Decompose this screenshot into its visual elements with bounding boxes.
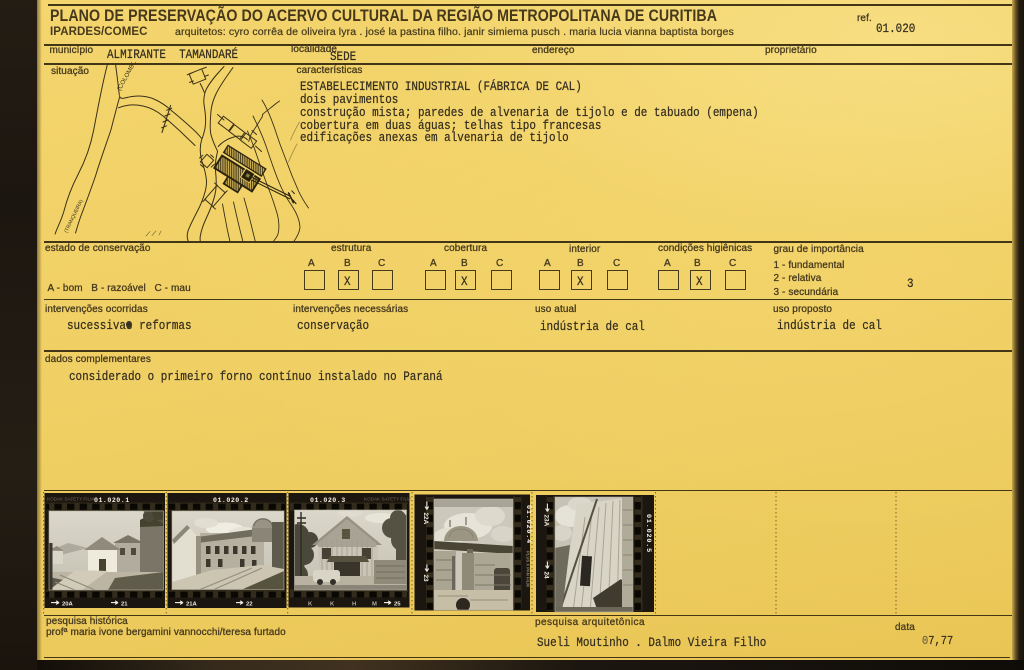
svg-text:22A: 22A xyxy=(422,513,429,525)
svg-text:01.020.5: 01.020.5 xyxy=(644,514,652,553)
svg-text:H: H xyxy=(352,601,356,607)
svg-text:24: 24 xyxy=(543,572,550,580)
svg-text:KODAK SAFETY FILM: KODAK SAFETY FILM xyxy=(364,497,411,502)
svg-text:21A: 21A xyxy=(186,601,198,607)
svg-text:22: 22 xyxy=(246,601,253,607)
svg-text:23A: 23A xyxy=(543,515,550,527)
svg-text:23: 23 xyxy=(422,575,429,583)
svg-text:01.020.1: 01.020.1 xyxy=(94,497,130,504)
svg-text:01.020.2: 01.020.2 xyxy=(213,497,249,504)
svg-text:20A: 20A xyxy=(62,601,74,607)
svg-text:01.020.3: 01.020.3 xyxy=(310,497,346,504)
svg-text:(COLOMBO): (COLOMBO) xyxy=(116,62,139,92)
svg-text:21: 21 xyxy=(121,601,128,607)
svg-text:M: M xyxy=(372,601,377,607)
svg-text:KODAK SAFETY FILM: KODAK SAFETY FILM xyxy=(47,497,94,502)
svg-text:PLUS X PAN FILM: PLUS X PAN FILM xyxy=(526,551,531,587)
svg-text:01.020.4: 01.020.4 xyxy=(524,505,532,544)
svg-text:(TRANQUEIRA): (TRANQUEIRA) xyxy=(63,198,84,233)
svg-text:K: K xyxy=(308,601,313,607)
svg-text:K: K xyxy=(330,601,335,607)
svg-text:25: 25 xyxy=(394,601,401,607)
